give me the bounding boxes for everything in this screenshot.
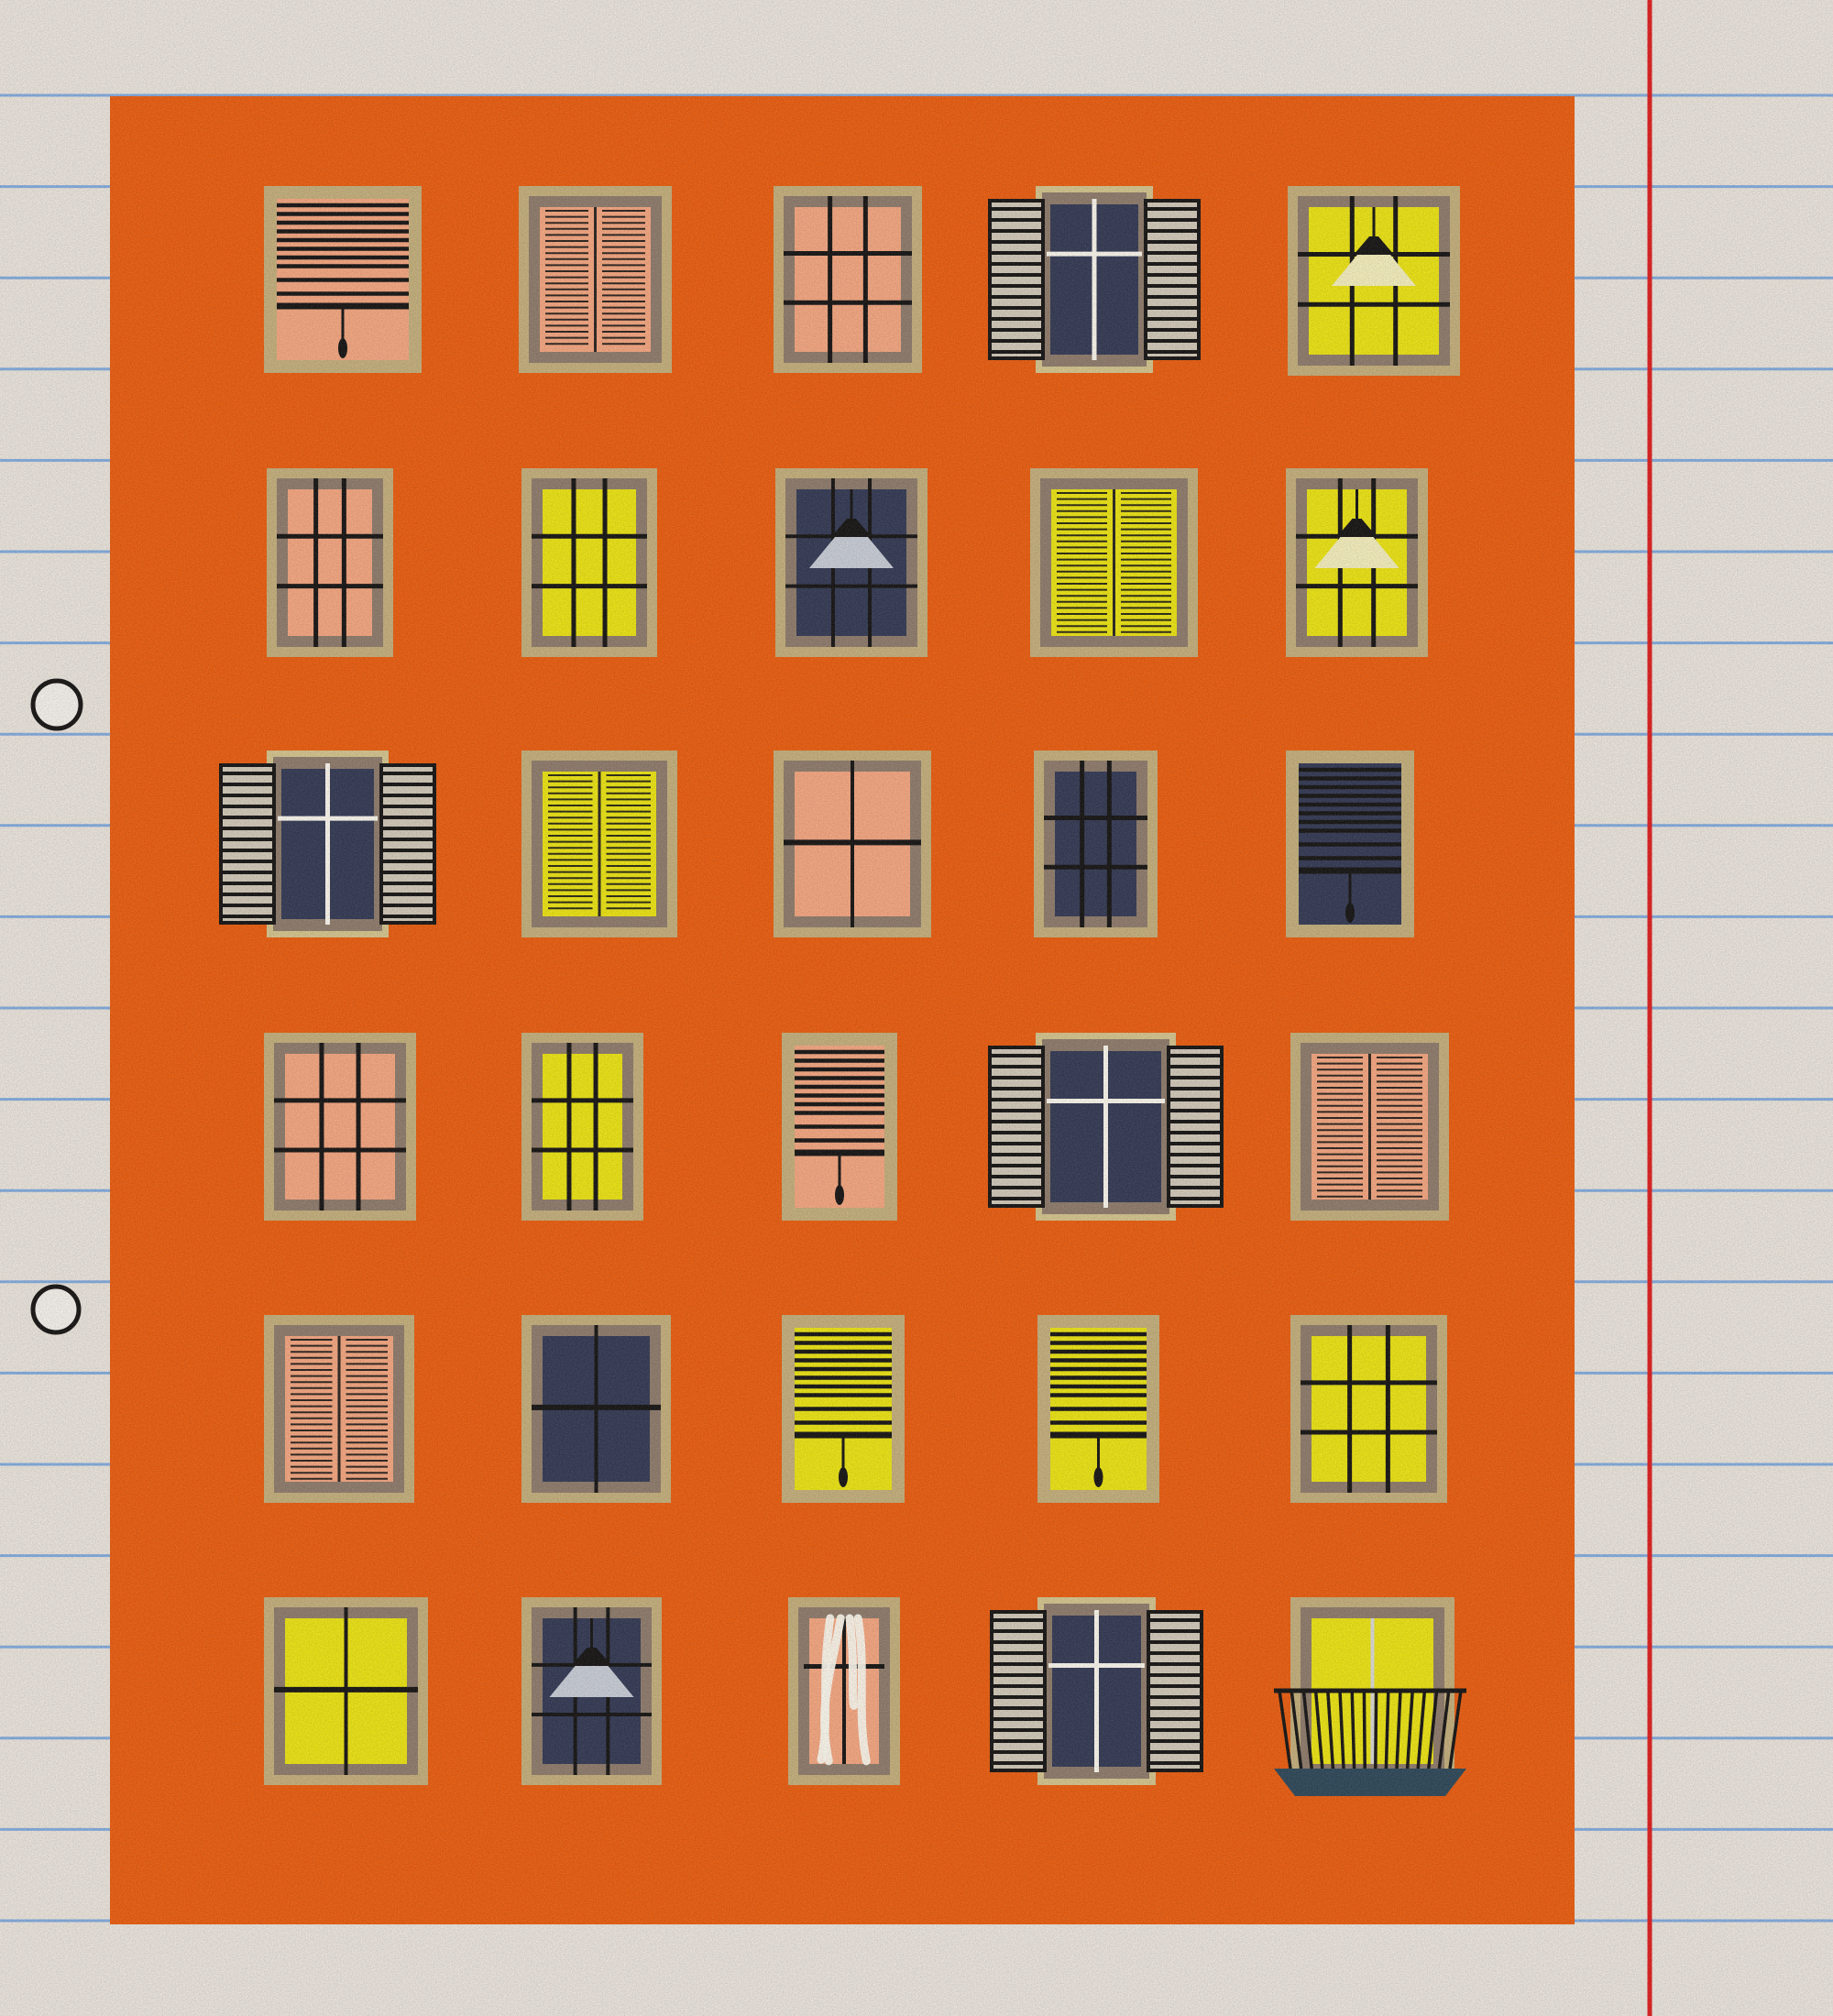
hole-punch-2: [33, 1287, 79, 1332]
window-r6c4-open-shutters: [992, 1597, 1202, 1785]
window-glass: [285, 1054, 395, 1200]
shutter-panel-left: [990, 1047, 1043, 1206]
window-glass: [795, 207, 901, 352]
window-r3c3-cross: [774, 751, 931, 937]
balcony-basket: [1274, 1769, 1466, 1796]
window-glass: [288, 489, 372, 636]
window-r1c5-lamp: [1288, 186, 1460, 376]
window-r5c1-closed-shutters: [264, 1315, 414, 1503]
shutter-panel-left: [221, 765, 274, 923]
window-r4c2-grid: [521, 1033, 643, 1221]
closed-louvered-shutters: [540, 207, 651, 352]
window-r6c5-balcony: [1274, 1597, 1466, 1796]
window-r6c1-cross: [264, 1597, 428, 1785]
closed-louvered-shutters: [285, 1336, 393, 1482]
window-r2c1-grid: [267, 468, 393, 657]
closed-louvered-shutters: [1312, 1054, 1428, 1200]
window-r1c2-closed-shutters: [519, 186, 672, 373]
shutter-panel-right: [1148, 1612, 1202, 1770]
closed-louvered-shutters: [543, 772, 656, 916]
window-glass: [543, 489, 636, 636]
window-glass: [543, 1054, 622, 1200]
window-r3c1-open-shutters: [221, 751, 434, 937]
window-r3c5-blinds: [1286, 751, 1414, 937]
window-r1c4-open-shutters: [990, 186, 1199, 373]
window-glass: [1312, 1336, 1426, 1482]
window-glass: [1055, 772, 1136, 916]
shutter-panel-right: [1146, 201, 1199, 358]
window-r1c3-grid: [774, 186, 922, 373]
window-r4c4-open-shutters: [990, 1033, 1222, 1221]
window-r1c1-blinds: [264, 186, 422, 373]
window-r3c4-grid: [1034, 751, 1158, 937]
shutter-panel-right: [1169, 1047, 1222, 1206]
shutter-panel-left: [990, 201, 1043, 358]
window-r5c5-grid: [1290, 1315, 1447, 1503]
window-r6c2-lamp: [521, 1597, 662, 1785]
window-r6c3-curtains: [788, 1597, 900, 1785]
notebook-page: [0, 0, 1833, 2016]
window-r2c5-lamp: [1286, 468, 1428, 657]
shutter-panel-left: [992, 1612, 1045, 1770]
hole-punch-1: [33, 681, 81, 729]
window-r5c2-cross: [521, 1315, 671, 1503]
window-r2c2-grid: [521, 468, 657, 657]
window-r3c2-closed-shutters: [521, 751, 677, 937]
facade-illustration: [0, 0, 1833, 2016]
window-r2c3-lamp: [775, 468, 927, 657]
window-r2c4-closed-shutters: [1030, 468, 1198, 657]
window-r5c3-blinds: [782, 1315, 905, 1503]
window-r4c5-closed-shutters: [1290, 1033, 1449, 1221]
window-r5c4-blinds: [1037, 1315, 1159, 1503]
window-r4c1-grid: [264, 1033, 416, 1221]
shutter-panel-right: [381, 765, 434, 923]
closed-louvered-shutters: [1051, 489, 1177, 636]
window-r4c3-blinds: [782, 1033, 897, 1221]
